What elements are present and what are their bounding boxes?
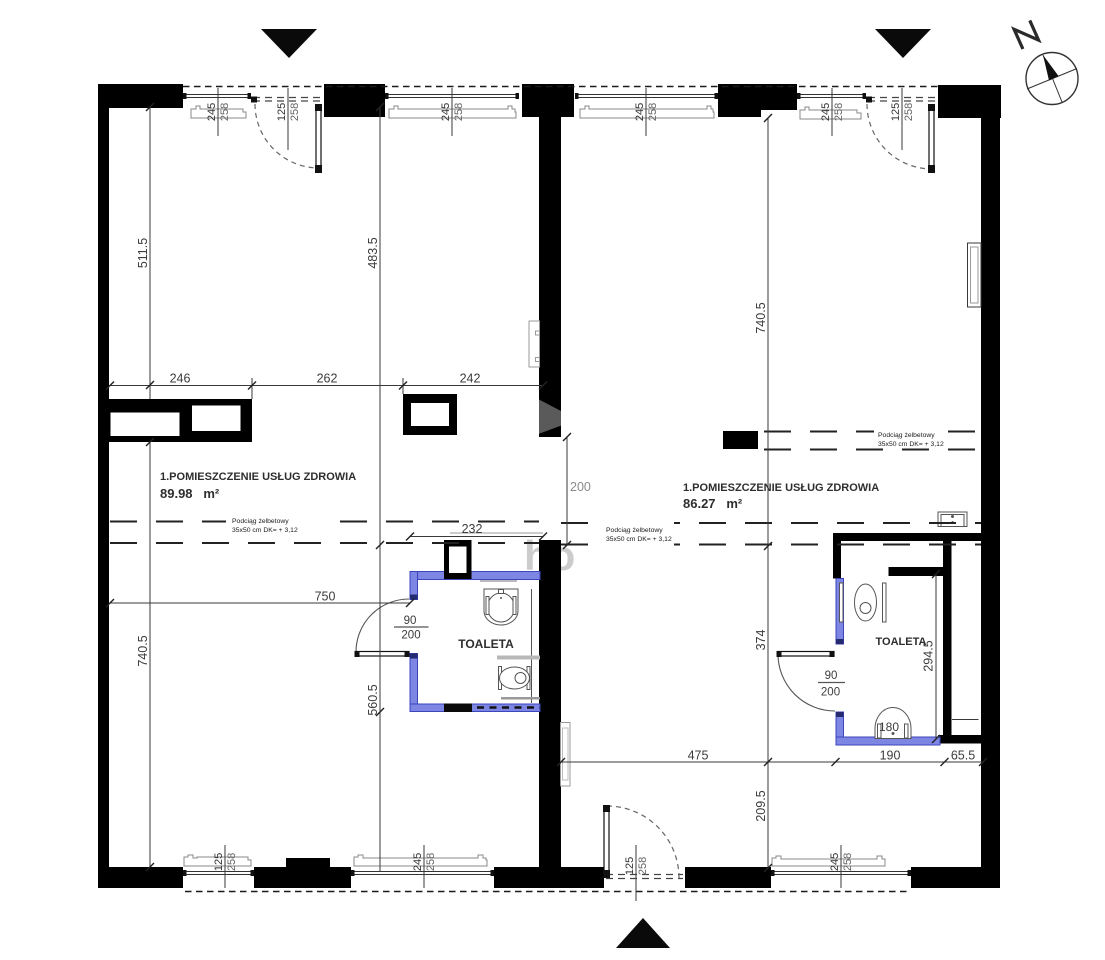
svg-text:245: 245 [634, 103, 646, 121]
svg-text:740.5: 740.5 [754, 302, 768, 333]
svg-text:258: 258 [647, 103, 659, 121]
svg-text:125: 125 [276, 103, 288, 121]
svg-text:258: 258 [637, 857, 649, 875]
svg-text:258: 258 [842, 853, 854, 871]
svg-text:1.POMIESZCZENIE USŁUG ZDROWIA: 1.POMIESZCZENIE USŁUG ZDROWIA [683, 482, 879, 494]
svg-text:200: 200 [401, 630, 420, 642]
svg-text:209.5: 209.5 [754, 790, 768, 821]
svg-text:560.5: 560.5 [366, 684, 380, 715]
svg-text:740.5: 740.5 [136, 635, 150, 666]
svg-text:125: 125 [624, 857, 636, 875]
svg-text:245: 245 [829, 853, 841, 871]
svg-text:TOALETA: TOALETA [458, 637, 514, 651]
svg-text:200: 200 [570, 480, 591, 494]
svg-text:35x50 cm DK= + 3,12: 35x50 cm DK= + 3,12 [606, 536, 672, 543]
svg-text:TOALETA: TOALETA [876, 636, 927, 648]
svg-text:258: 258 [219, 103, 231, 121]
svg-text:65.5: 65.5 [951, 749, 975, 763]
svg-text:86.27 m²: 86.27 m² [683, 496, 743, 511]
svg-text:90: 90 [404, 615, 417, 627]
svg-text:246: 246 [170, 372, 191, 386]
svg-text:258: 258 [425, 853, 437, 871]
svg-text:232: 232 [462, 522, 483, 536]
svg-text:258: 258 [226, 853, 238, 871]
svg-text:125: 125 [213, 853, 225, 871]
svg-text:245: 245 [820, 103, 832, 121]
svg-text:190: 190 [880, 749, 901, 763]
svg-text:262: 262 [317, 372, 338, 386]
svg-text:511.5: 511.5 [136, 238, 150, 268]
svg-text:374: 374 [754, 630, 768, 651]
svg-text:89.98 m²: 89.98 m² [160, 486, 220, 501]
svg-text:245: 245 [440, 103, 452, 121]
svg-text:125: 125 [890, 103, 902, 121]
svg-text:258: 258 [453, 103, 465, 121]
svg-text:Podciąg żelbetowy: Podciąg żelbetowy [606, 527, 663, 534]
svg-text:242: 242 [460, 372, 481, 386]
svg-text:258: 258 [289, 103, 301, 121]
svg-text:200: 200 [821, 687, 840, 699]
svg-text:245: 245 [412, 853, 424, 871]
svg-text:294.5: 294.5 [922, 640, 936, 671]
svg-text:258: 258 [833, 103, 845, 121]
svg-text:Podciąg żelbetowy: Podciąg żelbetowy [232, 518, 289, 525]
svg-text:475: 475 [688, 749, 709, 763]
svg-text:180: 180 [879, 720, 899, 734]
svg-text:483.5: 483.5 [366, 237, 380, 268]
svg-text:Podciąg żelbetowy: Podciąg żelbetowy [878, 432, 935, 439]
svg-text:258: 258 [903, 103, 915, 121]
svg-text:35x50 cm DK= + 3,12: 35x50 cm DK= + 3,12 [232, 527, 298, 534]
svg-text:90: 90 [825, 670, 838, 682]
svg-text:1.POMIESZCZENIE USŁUG ZDROWIA: 1.POMIESZCZENIE USŁUG ZDROWIA [160, 471, 356, 483]
svg-text:750: 750 [315, 590, 336, 604]
svg-text:35x50 cm DK= + 3,12: 35x50 cm DK= + 3,12 [878, 441, 944, 448]
svg-text:245: 245 [206, 103, 218, 121]
